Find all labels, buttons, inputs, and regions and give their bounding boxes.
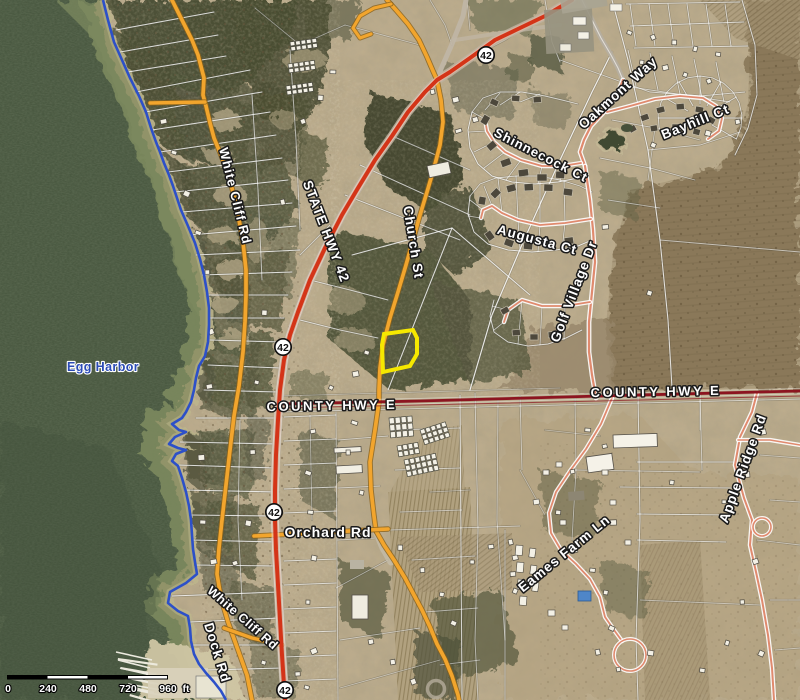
svg-text:720: 720	[119, 683, 137, 695]
svg-text:Orchard Rd: Orchard Rd	[284, 524, 371, 540]
svg-text:42: 42	[279, 685, 291, 697]
svg-text:480: 480	[79, 683, 97, 695]
svg-text:42: 42	[268, 507, 280, 519]
svg-text:COUNTY HWY E: COUNTY HWY E	[590, 383, 721, 400]
svg-text:ft: ft	[183, 683, 190, 695]
svg-text:0: 0	[5, 683, 11, 695]
svg-text:42: 42	[277, 342, 289, 354]
svg-text:Egg Harbor: Egg Harbor	[67, 360, 139, 374]
svg-text:240: 240	[39, 683, 57, 695]
svg-text:960: 960	[159, 683, 177, 695]
svg-text:42: 42	[480, 50, 492, 62]
svg-text:COUNTY HWY E: COUNTY HWY E	[266, 397, 397, 414]
